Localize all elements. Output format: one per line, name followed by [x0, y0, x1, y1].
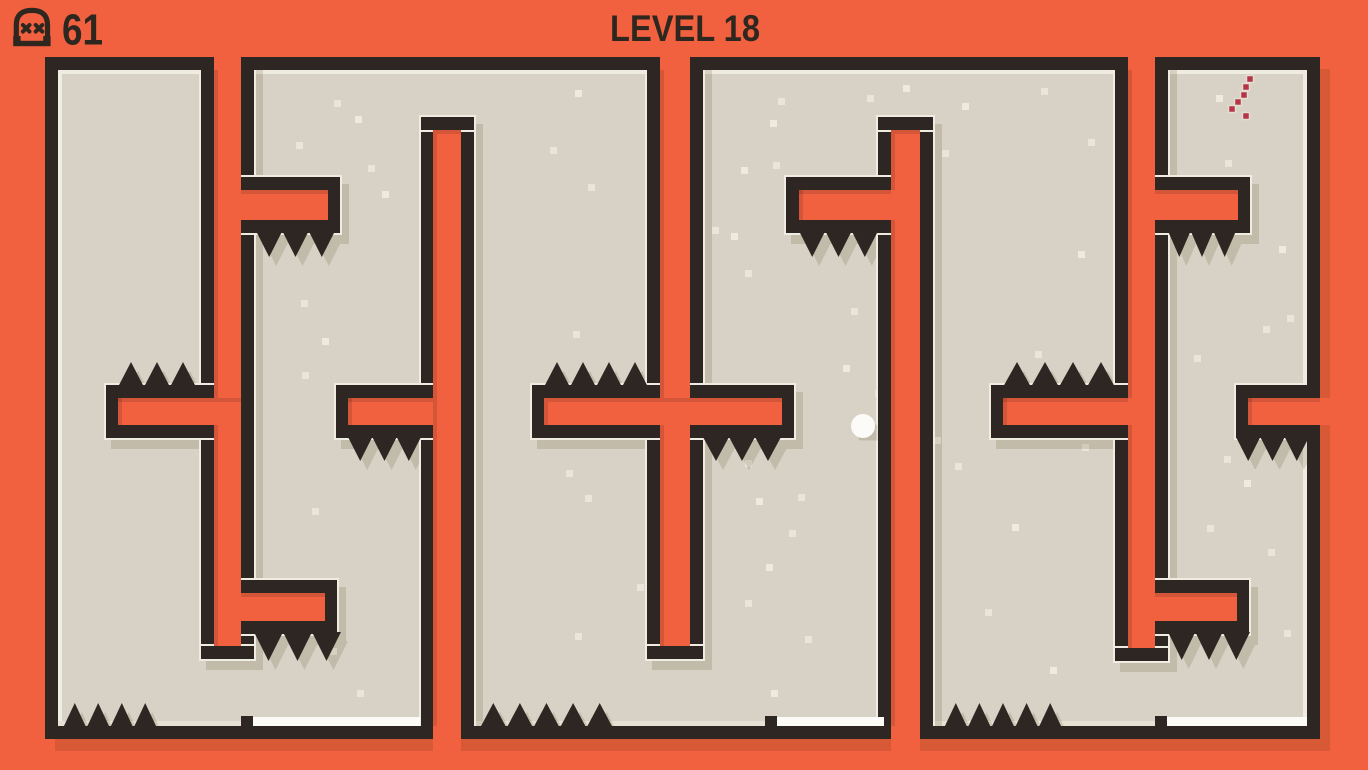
- svg-text:LEVEL 18: LEVEL 18: [610, 8, 760, 49]
- svg-text:61: 61: [62, 6, 103, 55]
